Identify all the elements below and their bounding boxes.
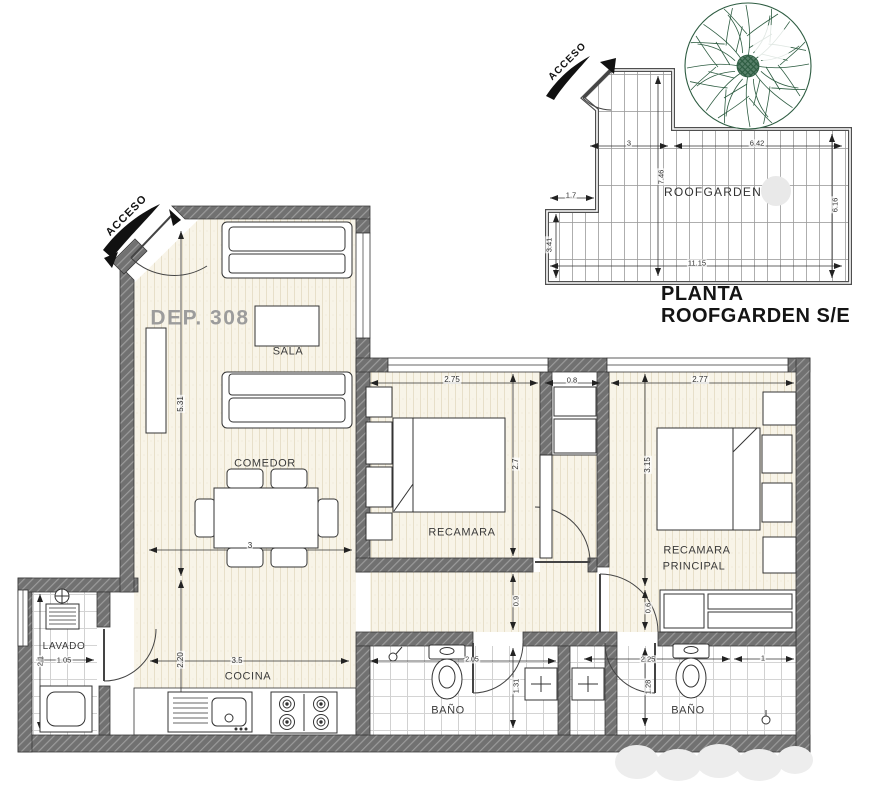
closet-icon-recamara: [366, 387, 392, 540]
plan-title-line-2: ROOFGARDEN S/E: [661, 306, 850, 326]
bed-icon-principal: [657, 428, 760, 530]
room-label-cocina: COCINA: [225, 672, 271, 683]
stove-icon: [271, 692, 337, 733]
dresser-icon: [660, 590, 796, 632]
dim-roof-notch-width: 1.7: [565, 191, 577, 199]
dim-cocina-height: 2.20: [177, 651, 185, 669]
kitchen-sink-icon: [168, 692, 252, 732]
dim-bano1-width: 2.05: [464, 657, 480, 664]
vanity-icon-1: [525, 668, 557, 700]
dim-comedor-width: 3: [247, 542, 253, 550]
dim-recamara-width: 2.75: [443, 376, 461, 384]
dim-bano2-width-a: 2.25: [640, 655, 657, 663]
dim-roof-top-left: 3: [626, 139, 632, 147]
room-label-recamara-principal-2: PRINCIPAL: [663, 562, 726, 573]
dim-principal-width: 2.77: [691, 376, 709, 384]
tree-icon: [684, 2, 813, 131]
toilet-icon-2: [673, 644, 709, 698]
dim-bano1-height: 1.31: [512, 678, 520, 695]
dim-lavado-width: 1.05: [56, 656, 73, 664]
sofa-icon-bottom: [222, 372, 352, 428]
dim-roof-notch-height: 3.41: [545, 237, 553, 254]
room-label-recamara-principal-1: RECAMARA: [663, 546, 730, 557]
room-label-comedor: COMEDOR: [234, 459, 296, 470]
dim-bano2-height: 1.28: [644, 679, 652, 696]
dim-closet-width: 0.8: [566, 376, 578, 384]
dim-roof-left-height: 7.46: [657, 169, 665, 186]
floor-plan-page: ACCESO DEP. 308 SALA COMEDOR COCINA LAVA…: [0, 0, 872, 786]
vanity-icon-2: [572, 668, 604, 700]
dim-roof-bottom-width: 11.15: [687, 259, 707, 267]
dim-roof-right-height: 6.16: [831, 197, 839, 214]
toilet-icon-1: [429, 645, 465, 699]
dim-closet-depth: 0.6: [644, 602, 652, 614]
unit-label: DEP. 308: [150, 308, 249, 329]
room-label-sala: SALA: [273, 347, 304, 358]
plan-drawing: [0, 0, 872, 786]
bed-icon: [393, 418, 505, 512]
room-label-lavado: LAVADO: [43, 642, 86, 652]
dim-hall-width: 0.9: [512, 595, 520, 607]
watermark-blobs: [615, 744, 813, 781]
room-label-roofgarden: ROOFGARDEN: [664, 186, 762, 198]
room-label-bano-1: BAÑO: [431, 706, 465, 717]
sofa-icon-top: [222, 222, 352, 278]
plan-title-line-1: PLANTA: [661, 284, 744, 304]
console-icon: [146, 328, 166, 433]
dim-roof-top-right: 6.42: [749, 139, 766, 147]
dim-bano2-width-b: 1: [760, 654, 766, 662]
dim-sala-height: 5.31: [177, 395, 185, 413]
watermark-blob-top: [753, 25, 791, 63]
room-label-bano-2: BAÑO: [671, 706, 705, 717]
dim-cocina-width: 3.5: [230, 657, 243, 665]
dim-recamara-height: 2.7: [512, 457, 520, 470]
dim-lavado-height: 2.1: [36, 655, 44, 667]
room-label-recamara: RECAMARA: [428, 528, 495, 539]
coffee-table-icon: [255, 306, 319, 346]
nightstand-icons: [762, 392, 796, 573]
washer-icon: [40, 686, 92, 732]
dim-principal-height: 3.15: [644, 456, 652, 474]
watermark-circle: [761, 176, 791, 206]
